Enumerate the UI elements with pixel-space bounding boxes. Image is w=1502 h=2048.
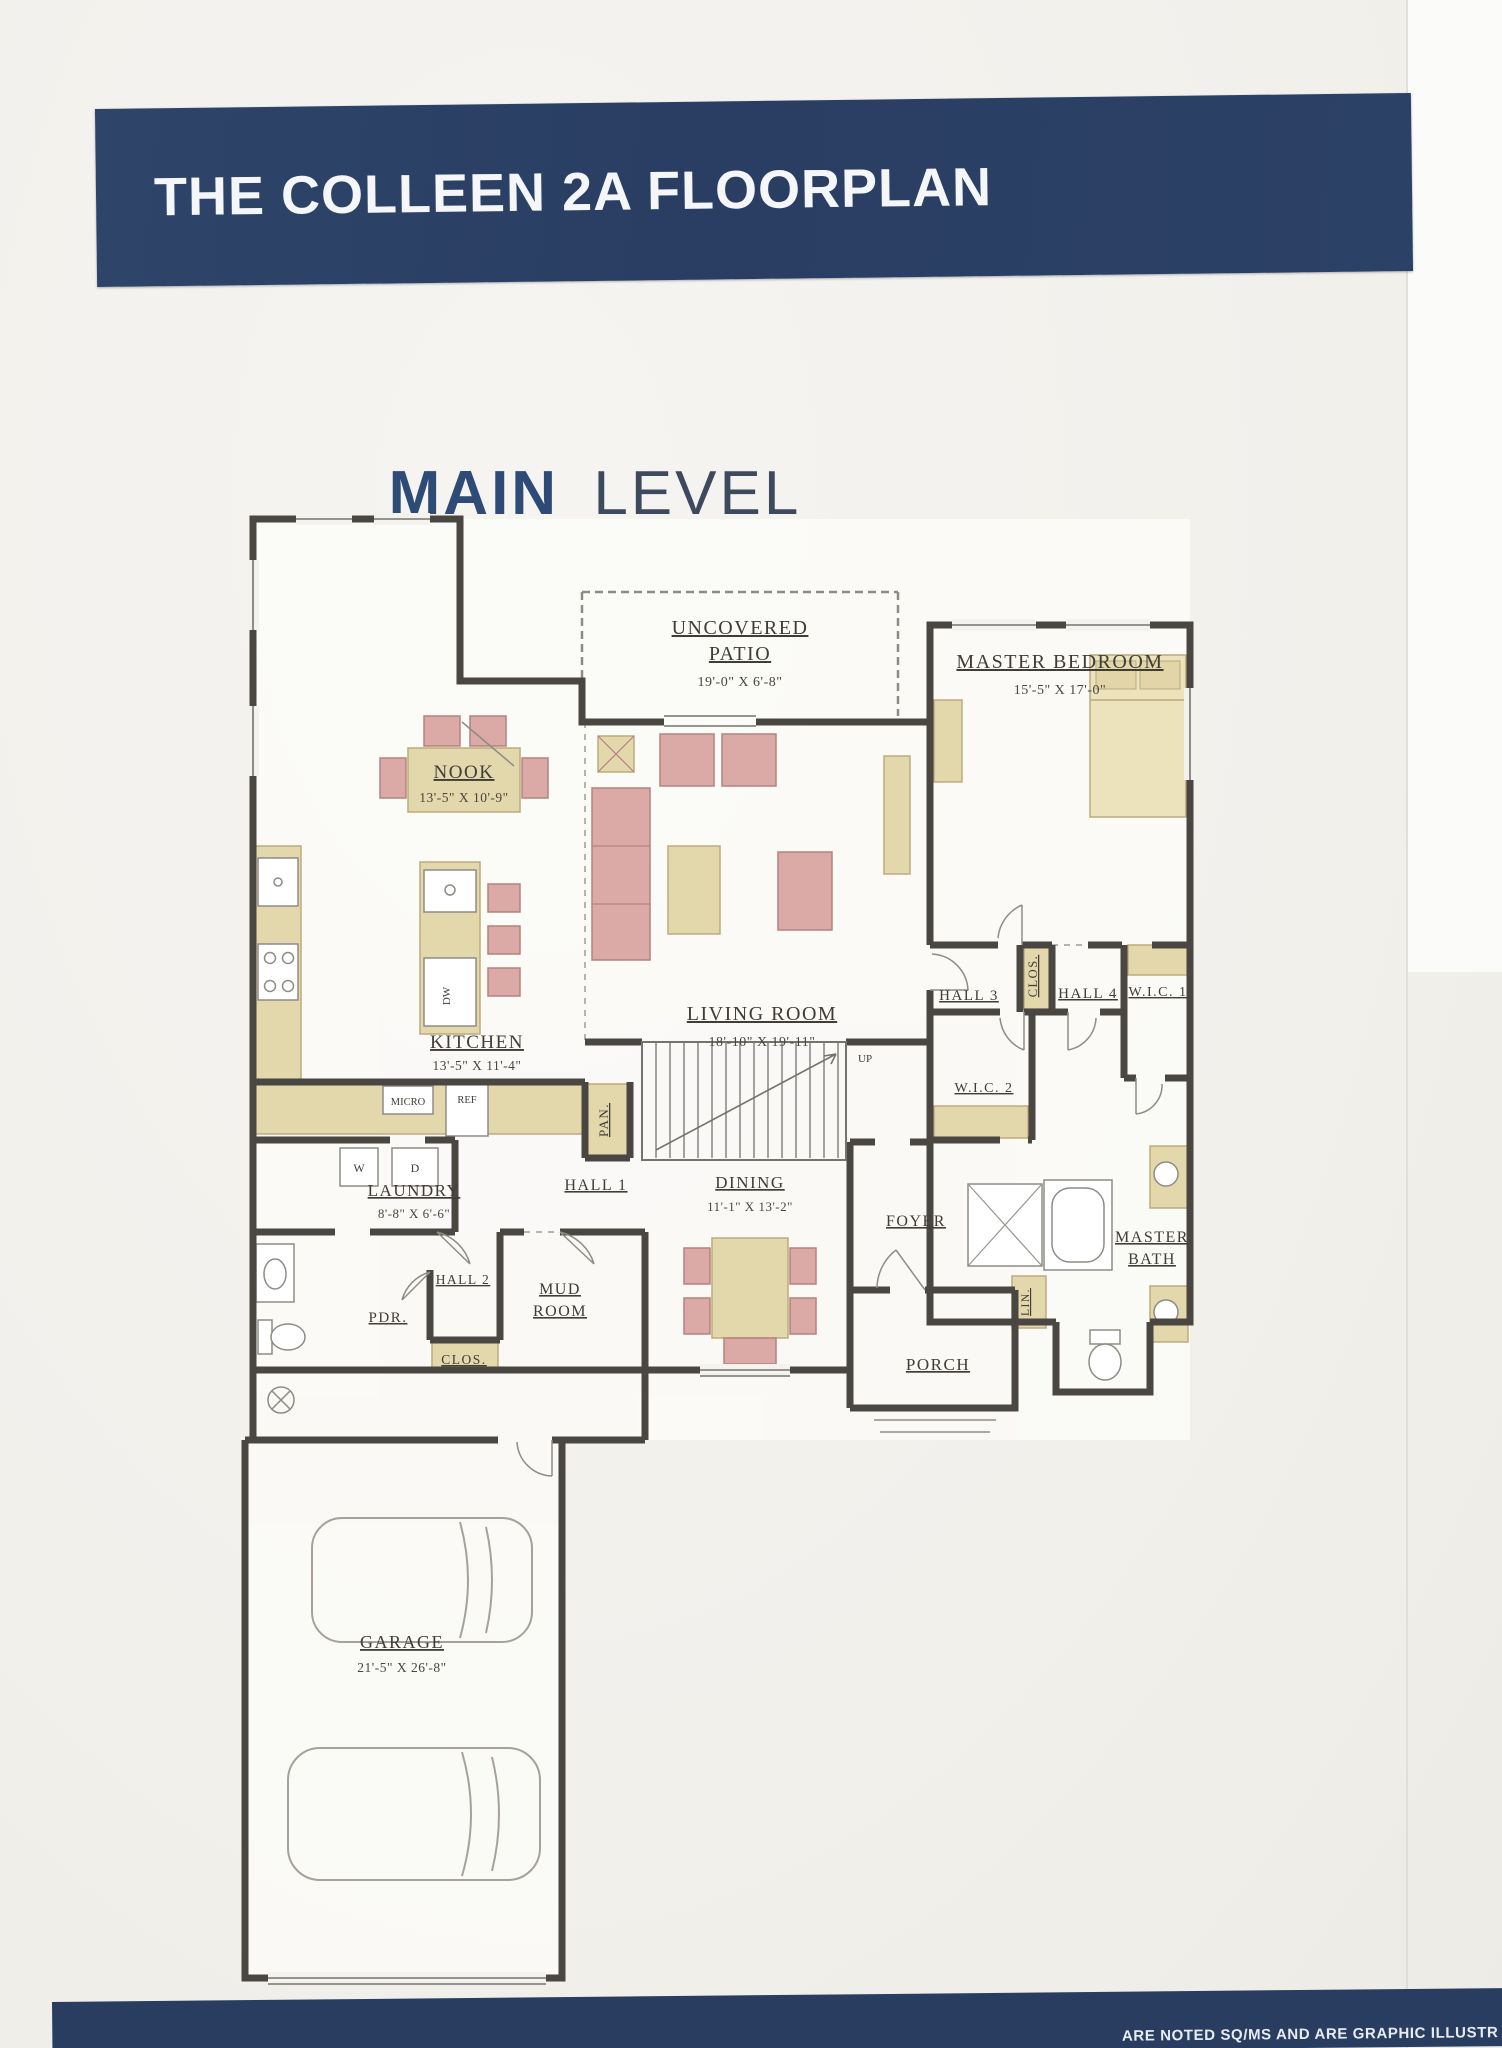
dims-kitchen: 13'-5" X 11'-4" [433, 1058, 522, 1073]
label-hall-3: HALL 3 [939, 988, 999, 1004]
label-uncovered-patio-2: PATIO [709, 643, 771, 665]
label-powder-room: PDR. [369, 1310, 408, 1326]
label-hall-1: HALL 1 [564, 1177, 627, 1194]
label-linen: LIN. [1020, 1288, 1032, 1316]
dims-living-room: 18'-10" X 19'-11" [709, 1035, 816, 1050]
label-wic-2: W.I.C. 2 [955, 1081, 1014, 1096]
label-garage: GARAGE [360, 1632, 444, 1652]
label-mud-room-2: ROOM [533, 1303, 587, 1320]
label-mud-room-1: MUD [539, 1281, 581, 1298]
label-refrigerator: REF [457, 1095, 476, 1106]
scanned-floorplan-page: THE COLLEEN 2A FLOORPLAN MAIN LEVEL [0, 0, 1502, 2048]
dims-uncovered-patio: 19'-0" X 6'-8" [698, 675, 783, 690]
footer-disclaimer-fragment: ARE NOTED SQ/MS AND ARE GRAPHIC ILLUSTR [1122, 2024, 1499, 2045]
label-uncovered-patio-1: UNCOVERED [672, 617, 809, 639]
label-master-bath-1: MASTER [1115, 1229, 1189, 1246]
dims-laundry: 8'-8" X 6'-6" [378, 1206, 450, 1221]
label-master-bedroom: MASTER BEDROOM [956, 651, 1163, 673]
label-laundry: LAUNDRY [368, 1181, 461, 1200]
label-dryer: D [411, 1161, 420, 1175]
floorplan-drawing: UNCOVERED PATIO 19'-0" X 6'-8" MASTER BE… [0, 0, 1502, 2048]
label-stairs-up: UP [858, 1053, 872, 1065]
label-wic-1: W.I.C. 1 [1129, 985, 1188, 1000]
label-washer: W [353, 1161, 365, 1175]
label-closet-mud: CLOS. [441, 1352, 486, 1367]
label-living-room: LIVING ROOM [687, 1003, 837, 1025]
label-dishwasher: DW [441, 986, 453, 1005]
label-foyer: FOYER [886, 1213, 946, 1230]
label-closet-hall: CLOS. [1026, 955, 1040, 998]
dims-dining: 11'-1" X 13'-2" [707, 1199, 793, 1214]
dims-garage: 21'-5" X 26'-8" [357, 1660, 446, 1675]
dims-master-bedroom: 15'-5" X 17'-0" [1014, 683, 1106, 698]
dims-nook: 13'-5" X 10'-9" [419, 790, 508, 805]
label-microwave: MICRO [391, 1097, 426, 1108]
label-hall-4: HALL 4 [1058, 986, 1118, 1002]
label-nook: NOOK [434, 762, 495, 783]
label-pantry: PAN. [596, 1103, 611, 1137]
label-master-bath-2: BATH [1128, 1251, 1176, 1268]
label-porch: PORCH [906, 1355, 970, 1374]
label-hall-2: HALL 2 [436, 1272, 491, 1287]
label-kitchen: KITCHEN [430, 1032, 524, 1053]
label-dining: DINING [715, 1173, 784, 1192]
master-bed [1090, 655, 1186, 817]
